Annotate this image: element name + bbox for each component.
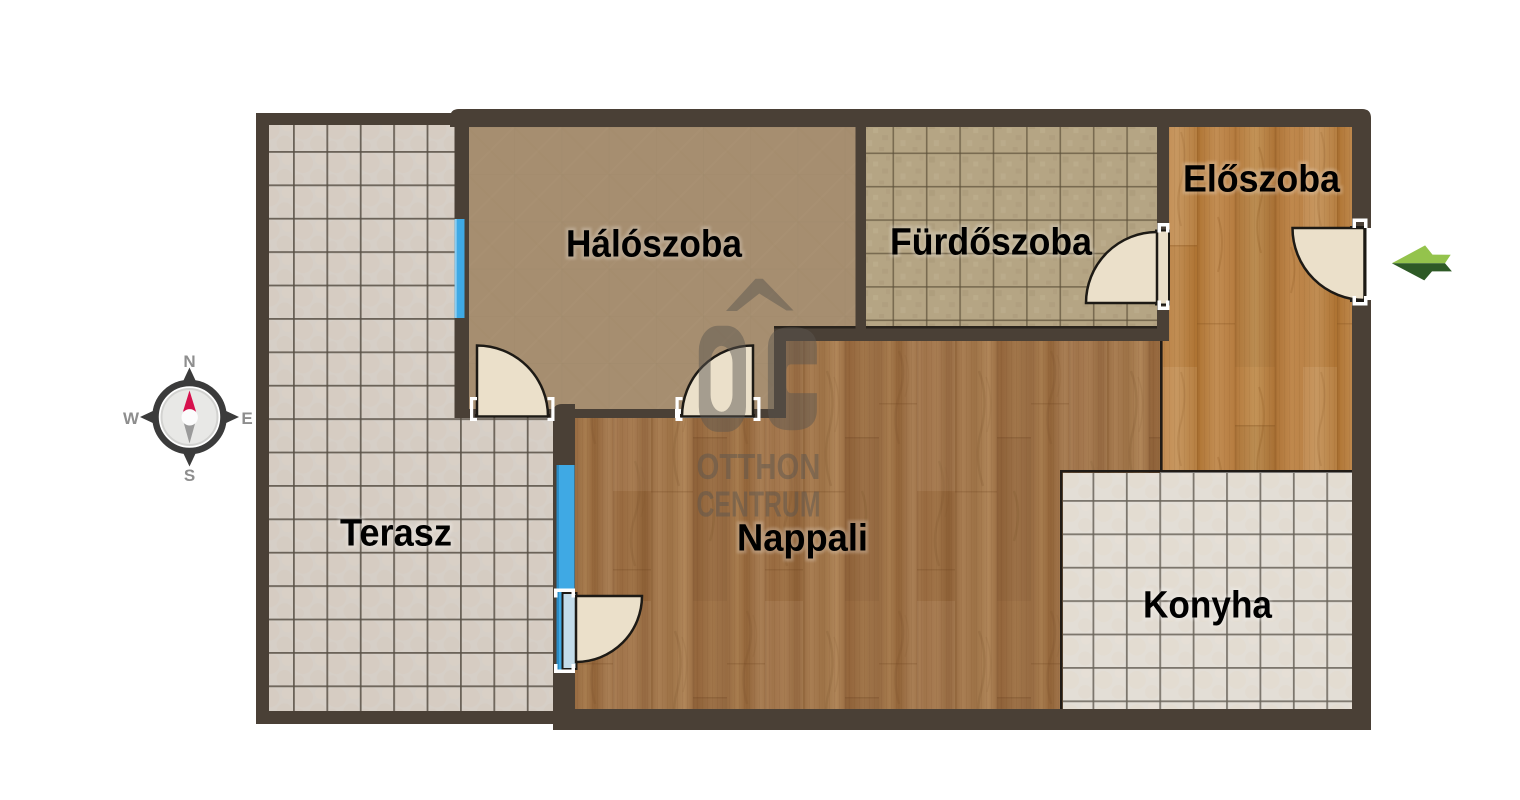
svg-text:S: S bbox=[184, 466, 195, 485]
svg-text:Konyha: Konyha bbox=[1143, 585, 1273, 627]
svg-text:CENTRUM: CENTRUM bbox=[697, 483, 821, 524]
svg-text:Hálószoba: Hálószoba bbox=[566, 224, 743, 266]
svg-text:Előszoba: Előszoba bbox=[1183, 159, 1341, 201]
svg-text:Fürdőszoba: Fürdőszoba bbox=[890, 222, 1093, 264]
svg-text:OTTHON: OTTHON bbox=[697, 446, 821, 487]
svg-text:Terasz: Terasz bbox=[340, 513, 452, 555]
svg-text:N: N bbox=[183, 352, 195, 371]
svg-text:W: W bbox=[123, 409, 140, 428]
svg-text:E: E bbox=[241, 409, 252, 428]
